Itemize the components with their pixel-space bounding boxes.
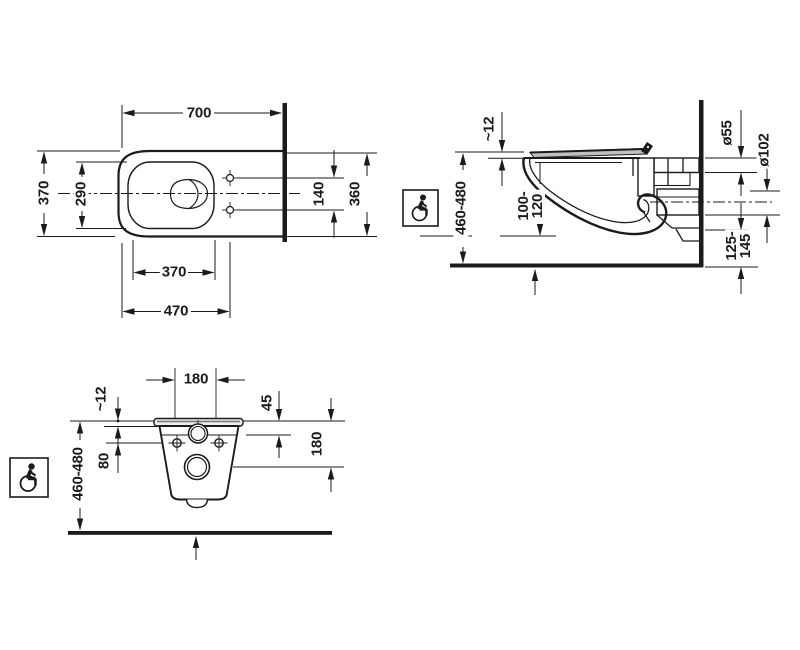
dim-label-rim-clearance: 100- 120 xyxy=(517,189,545,222)
connection-pipes-side xyxy=(638,158,699,241)
dim-label-bowl-inner-width: 290 xyxy=(74,180,89,208)
wheelchair-icon xyxy=(403,190,438,226)
dim-label-inlet-diameter: ø55 xyxy=(720,118,735,147)
dim-label-seat-height-rear: 460-480 xyxy=(71,445,86,503)
wheelchair-icon xyxy=(10,458,48,497)
dim-label-seat-thickness-rear: ~12 xyxy=(94,385,109,414)
dim-label-top-to-inlet: 45 xyxy=(260,393,275,413)
dim-label-body-back-width: 360 xyxy=(348,180,363,208)
side-view-wall xyxy=(699,100,704,267)
top-view-drawing xyxy=(37,103,377,318)
toilet-water-outline xyxy=(171,180,208,209)
drawing-linework xyxy=(0,0,800,650)
dim-label-rim-clearance-line2: 120 xyxy=(531,191,545,220)
outlet-hole-rear xyxy=(185,455,210,480)
rear-view-floor xyxy=(68,531,332,535)
fixing-holes-plan xyxy=(222,170,238,218)
dim-label-outlet-height-line2: 145 xyxy=(739,231,753,260)
rear-view-drawing xyxy=(10,368,345,560)
dim-label-seat-height-side: 460-480 xyxy=(454,179,469,237)
dim-label-front-to-holes: 470 xyxy=(162,304,190,319)
toilet-seat-side xyxy=(530,142,653,158)
dim-label-top-to-outlet: 180 xyxy=(310,430,325,458)
dim-label-holes-spacing-rear: 180 xyxy=(182,372,210,387)
trap-outline-rear xyxy=(187,500,208,508)
dim-label-overall-depth: 700 xyxy=(185,106,213,121)
dim-label-seat-thickness-side: ~12 xyxy=(482,115,497,144)
dim-label-top-to-holes: 80 xyxy=(97,451,112,471)
top-view-wall xyxy=(283,103,288,242)
dim-label-holes-spacing-plan: 140 xyxy=(312,180,327,208)
dim-label-outlet-diameter: ø102 xyxy=(757,131,772,168)
dim-label-overall-width: 370 xyxy=(37,179,52,207)
technical-drawing-canvas: 700 370 290 140 360 370 470 ~12 460-480 … xyxy=(0,0,800,650)
dim-label-outlet-height: 125- 145 xyxy=(725,229,753,262)
dim-label-bowl-inner-depth: 370 xyxy=(160,265,188,280)
top-view-dimension-lines xyxy=(44,113,367,312)
side-view-floor xyxy=(450,264,703,268)
